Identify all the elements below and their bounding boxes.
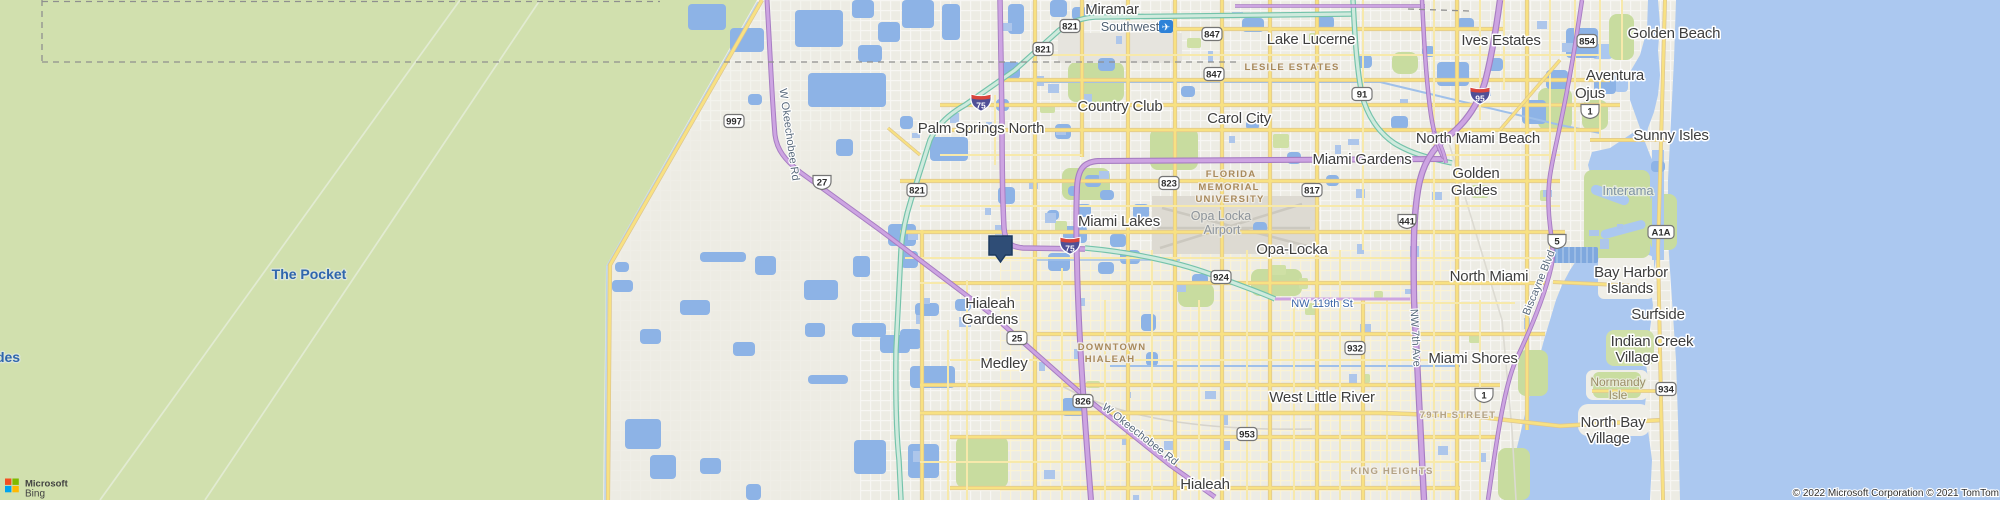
svg-text:Bing: Bing [25,489,45,500]
svg-text:LESILE ESTATES: LESILE ESTATES [1244,62,1339,73]
svg-text:Ojus: Ojus [1575,85,1605,102]
svg-text:Surfside: Surfside [1631,306,1684,323]
svg-text:826: 826 [1075,396,1091,407]
svg-text:Country Club: Country Club [1077,98,1162,115]
svg-text:79TH STREET: 79TH STREET [1420,410,1497,421]
svg-text:Opa Locka: Opa Locka [1191,209,1252,223]
svg-text:Southwest: Southwest [1101,20,1160,34]
svg-text:des: des [0,349,20,365]
svg-text:North Bay: North Bay [1581,414,1647,431]
svg-text:Aventura: Aventura [1586,67,1645,84]
svg-text:Palm Springs North: Palm Springs North [918,120,1044,137]
svg-text:1: 1 [1587,106,1593,117]
svg-text:Indian Creek: Indian Creek [1611,333,1694,350]
svg-text:Lake Lucerne: Lake Lucerne [1267,31,1356,48]
svg-text:821: 821 [1062,21,1079,32]
svg-text:MEMORIAL: MEMORIAL [1198,182,1259,193]
svg-text:DOWNTOWN: DOWNTOWN [1078,342,1147,353]
svg-text:91: 91 [1357,89,1368,100]
svg-text:KING HEIGHTS: KING HEIGHTS [1350,466,1433,477]
svg-text:Village: Village [1615,349,1658,366]
svg-text:Medley: Medley [980,355,1028,372]
svg-text:Bay Harbor: Bay Harbor [1594,264,1668,281]
svg-text:823: 823 [1161,178,1177,189]
svg-text:West Little River: West Little River [1269,389,1375,406]
svg-text:The Pocket: The Pocket [272,266,347,282]
svg-text:934: 934 [1658,384,1675,395]
svg-text:Hialeah: Hialeah [1180,476,1229,493]
svg-text:Hialeah: Hialeah [965,295,1014,312]
svg-text:95: 95 [1475,94,1485,104]
svg-text:Miami Shores: Miami Shores [1428,350,1517,367]
svg-text:NW 119th St: NW 119th St [1291,298,1353,310]
svg-text:Airport: Airport [1204,223,1241,237]
svg-text:✈: ✈ [1162,23,1170,34]
svg-text:North Miami Beach: North Miami Beach [1416,130,1540,147]
svg-text:Ives Estates: Ives Estates [1461,32,1540,49]
svg-text:Islands: Islands [1607,280,1653,297]
svg-text:A1A: A1A [1651,227,1670,238]
svg-text:997: 997 [726,116,742,127]
svg-text:924: 924 [1213,272,1230,283]
svg-text:HIALEAH: HIALEAH [1085,354,1136,365]
svg-text:Miami Gardens: Miami Gardens [1312,151,1411,168]
svg-text:817: 817 [1304,185,1320,196]
svg-text:Interama: Interama [1602,183,1654,198]
svg-text:1: 1 [1481,390,1487,401]
svg-text:Normandy: Normandy [1590,375,1645,389]
svg-text:25: 25 [1012,333,1023,344]
svg-text:Golden: Golden [1452,165,1499,182]
svg-text:Opa-Locka: Opa-Locka [1256,241,1328,258]
svg-text:75: 75 [1065,244,1075,254]
svg-text:847: 847 [1206,69,1222,80]
svg-text:UNIVERSITY: UNIVERSITY [1195,194,1264,205]
svg-text:FLORIDA: FLORIDA [1206,169,1257,180]
svg-text:847: 847 [1204,29,1220,40]
svg-text:932: 932 [1347,343,1363,354]
svg-text:Miami Lakes: Miami Lakes [1078,213,1160,230]
svg-text:854: 854 [1579,36,1596,47]
svg-text:441: 441 [1399,216,1416,227]
svg-text:5: 5 [1554,236,1560,247]
svg-text:Carol City: Carol City [1207,110,1272,127]
svg-text:North Miami: North Miami [1450,268,1529,285]
svg-text:Golden Beach: Golden Beach [1628,25,1721,42]
svg-text:© 2022 Microsoft Corporation ©: © 2022 Microsoft Corporation © 2021 TomT… [1793,488,1999,499]
svg-text:75: 75 [976,101,986,111]
svg-text:27: 27 [817,177,828,188]
svg-text:821: 821 [909,185,926,196]
svg-text:Glades: Glades [1451,182,1497,199]
svg-text:821: 821 [1035,44,1052,55]
svg-text:Gardens: Gardens [962,311,1018,328]
svg-text:Miramar: Miramar [1085,1,1139,18]
svg-text:Village: Village [1586,430,1629,447]
svg-text:953: 953 [1239,429,1255,440]
svg-text:Sunny Isles: Sunny Isles [1633,127,1708,144]
svg-text:Isle: Isle [1609,388,1628,402]
